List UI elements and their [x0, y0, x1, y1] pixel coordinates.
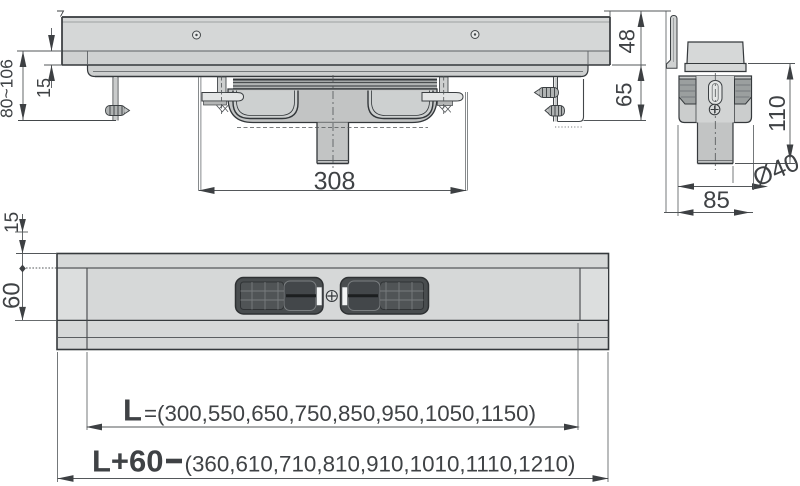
- svg-text:(360,610,710,810,910,1010,1110: (360,610,710,810,910,1010,1110,1210): [185, 452, 576, 477]
- svg-text:65: 65: [612, 83, 637, 107]
- svg-text:=(300,550,650,750,850,950,1050: =(300,550,650,750,850,950,1050,1150): [144, 401, 536, 426]
- svg-text:48: 48: [615, 29, 640, 53]
- svg-text:308: 308: [314, 168, 356, 196]
- svg-text:60: 60: [0, 282, 26, 309]
- svg-text:80~106: 80~106: [0, 59, 17, 118]
- svg-text:L+60: L+60: [92, 444, 164, 479]
- svg-text:15: 15: [34, 78, 54, 98]
- svg-text:L: L: [123, 393, 142, 428]
- svg-text:85: 85: [703, 187, 730, 214]
- svg-text:15: 15: [2, 212, 23, 233]
- svg-text:110: 110: [764, 95, 790, 132]
